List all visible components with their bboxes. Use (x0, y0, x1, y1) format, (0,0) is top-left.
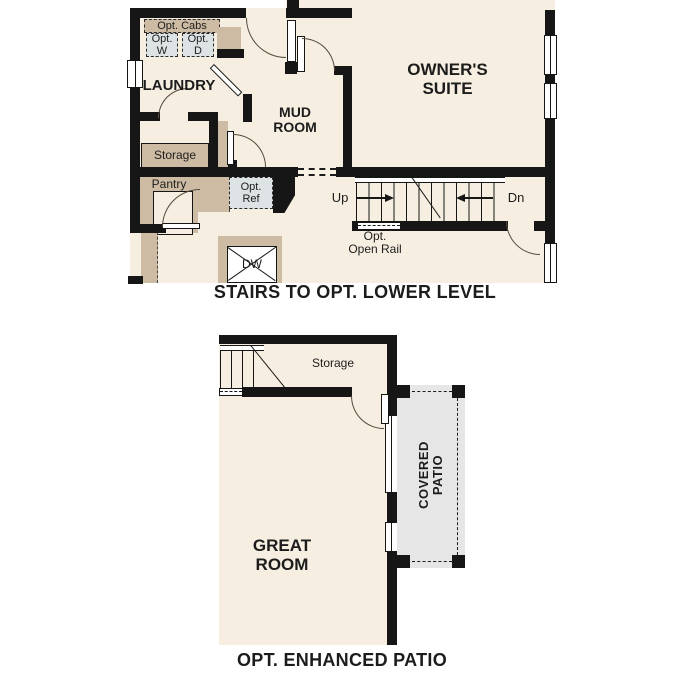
opt-ref-label: Opt. Ref (229, 178, 273, 208)
stair-down-label: Dn (504, 191, 528, 205)
wall (219, 335, 397, 344)
great-room-line2: ROOM (256, 556, 309, 575)
wall (545, 75, 555, 83)
stair-treads (356, 183, 506, 221)
opt-open-rail (219, 388, 243, 396)
opt-ref-line1: Opt. (241, 181, 262, 193)
wall (286, 8, 352, 18)
stair-up-arrow (357, 197, 385, 199)
opt-washer-line1: Opt. (152, 33, 173, 45)
wall (243, 94, 252, 122)
dishwasher-label: DW (227, 246, 277, 283)
wall (130, 167, 298, 177)
opt-open-rail-line2: Open Rail (348, 243, 401, 256)
window (127, 60, 143, 88)
mud-room-line2: ROOM (273, 120, 317, 135)
kitchen-counter (198, 176, 230, 212)
stair-treads (220, 351, 264, 388)
exterior-gap (130, 0, 286, 8)
stair-down-arrow (465, 197, 493, 199)
opt-dryer-label: Opt. D (182, 33, 214, 57)
wall (130, 112, 160, 121)
lower-plan-title: OPT. ENHANCED PATIO (92, 650, 592, 672)
opt-cabs-label: Opt. Cabs (144, 19, 220, 33)
mud-room-line1: MUD (279, 105, 311, 120)
patio-post (397, 555, 410, 568)
opt-dryer-line1: Opt. (188, 33, 209, 45)
wall (387, 552, 397, 645)
window (544, 83, 557, 119)
patio-dashed-edge (412, 391, 452, 392)
utility-box (217, 27, 241, 49)
entry-door-leaf (287, 20, 296, 62)
opt-washer-line2: W (157, 45, 167, 57)
window (544, 35, 557, 75)
room-label-owners-suite: OWNER'S SUITE (380, 56, 515, 104)
room-label-pantry: Pantry (144, 178, 194, 191)
opt-washer-label: Opt. W (146, 33, 178, 57)
owners-suite-line2: SUITE (422, 80, 472, 99)
wall (130, 8, 140, 62)
wall (545, 10, 555, 35)
room-label-mud-room: MUD ROOM (263, 104, 327, 136)
room-label-great-room: GREAT ROOM (222, 532, 342, 580)
room-label-storage: Storage (141, 145, 209, 167)
wall (287, 0, 299, 8)
patio-post (452, 555, 465, 568)
wall (130, 8, 246, 18)
opt-ref-line2: Ref (242, 193, 259, 205)
wall (285, 62, 297, 74)
owners-suite-line1: OWNER'S (407, 61, 488, 80)
wall (242, 387, 352, 397)
stair-up-label: Up (328, 191, 352, 205)
room-label-laundry: LAUNDRY (142, 78, 216, 94)
wall (336, 167, 555, 177)
floorplan-canvas: Opt. Cabs Opt. W Opt. D LAUNDRY MUD ROOM… (0, 0, 687, 687)
cabinet-strip (141, 232, 158, 283)
stair-down-arrow-icon (456, 194, 465, 202)
upper-plan-title: STAIRS TO OPT. LOWER LEVEL (105, 282, 605, 304)
room-label-storage-lower: Storage (298, 357, 368, 371)
patio-dashed-edge (412, 561, 452, 562)
patio-post (397, 385, 410, 398)
covered-patio-line2: PATIO (431, 455, 445, 495)
room-label-covered-patio: COVERED PATIO (386, 430, 476, 520)
window (544, 243, 557, 283)
opt-dryer-line2: D (194, 45, 202, 57)
wall (130, 88, 140, 233)
cased-opening (298, 168, 336, 176)
covered-patio-line1: COVERED (417, 441, 431, 509)
wall (217, 49, 244, 58)
great-room-line1: GREAT (253, 537, 311, 556)
stair-up-arrow-icon (385, 194, 394, 202)
wall (343, 66, 352, 167)
wall (334, 66, 352, 75)
opt-open-rail-label: Opt. Open Rail (342, 229, 408, 257)
patio-post (452, 385, 465, 398)
